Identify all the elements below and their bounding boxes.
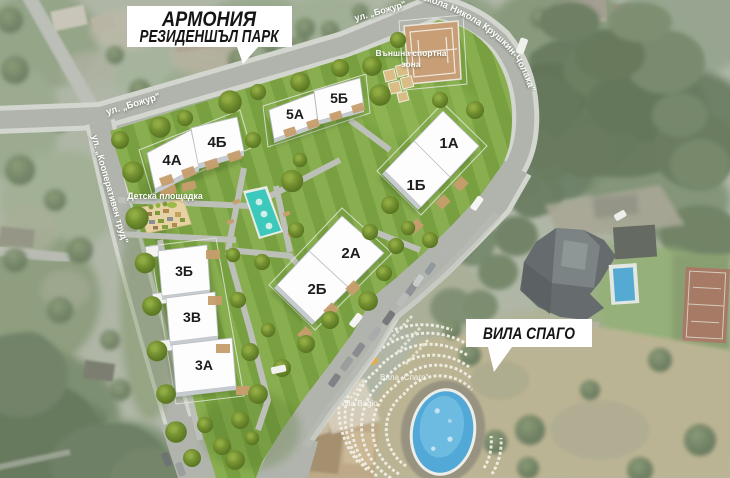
svg-text:Детска площадка: Детска площадка <box>127 191 203 201</box>
svg-text:4Б: 4Б <box>207 134 226 151</box>
svg-text:4А: 4А <box>162 152 181 169</box>
svg-text:3Б: 3Б <box>175 263 193 279</box>
svg-text:ВИЛА СПАГО: ВИЛА СПАГО <box>483 324 575 343</box>
svg-text:3А: 3А <box>195 357 213 373</box>
svg-text:5Б: 5Б <box>330 90 348 106</box>
svg-text:2Б: 2Б <box>307 281 326 298</box>
svg-text:РЕЗИДЕНШЪЛ ПАРК: РЕЗИДЕНШЪЛ ПАРК <box>140 26 280 46</box>
svg-text:1Б: 1Б <box>406 177 425 194</box>
svg-text:1А: 1А <box>439 135 458 152</box>
svg-text:зона: зона <box>401 59 420 69</box>
svg-text:3В: 3В <box>183 309 201 325</box>
svg-text:2А: 2А <box>341 245 360 262</box>
svg-text:Външна спортна: Външна спортна <box>376 48 447 58</box>
svg-text:5А: 5А <box>286 106 304 122</box>
